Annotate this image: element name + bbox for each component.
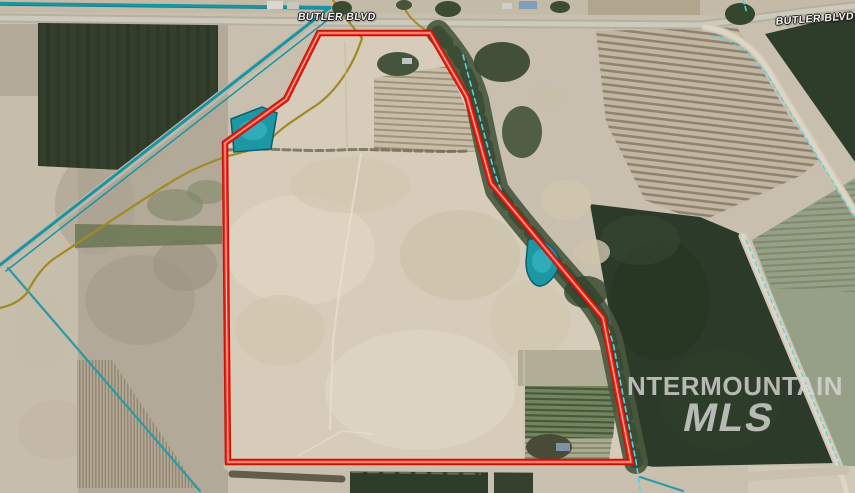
parcel-mottle bbox=[400, 210, 520, 300]
watermark-mls-text: MLS bbox=[680, 398, 779, 438]
trees-top bbox=[725, 3, 755, 25]
top-farm-field bbox=[588, 0, 700, 15]
mls-aerial-listing-photo: BUTLER BLVD BUTLER BLVD NTERMOUNTAIN MLS bbox=[0, 0, 855, 493]
hedgerow-south bbox=[232, 474, 342, 479]
trees-top bbox=[550, 1, 570, 13]
sand-gap bbox=[574, 239, 610, 265]
parcel-mottle bbox=[290, 157, 410, 213]
green-mottle bbox=[600, 215, 680, 265]
sand-gap bbox=[532, 87, 562, 107]
farmstead-se-roof bbox=[556, 443, 570, 451]
farmstead-ne-roof bbox=[402, 58, 412, 64]
trees-top bbox=[396, 0, 412, 10]
trees-top bbox=[435, 1, 461, 17]
parcel-mottle bbox=[235, 295, 325, 365]
riparian-blob bbox=[474, 42, 530, 82]
riparian-blob bbox=[502, 106, 542, 158]
parcel-subfield-se-gray bbox=[518, 350, 616, 386]
building-top bbox=[287, 2, 299, 9]
green-band-west bbox=[75, 224, 222, 248]
building-top-blue-roof bbox=[519, 1, 537, 9]
building-top bbox=[502, 3, 512, 9]
parcel-mottle bbox=[490, 280, 570, 360]
road-label-butler-blvd-west: BUTLER BLVD bbox=[297, 11, 376, 23]
building-top bbox=[267, 1, 283, 9]
farmstead-ne bbox=[377, 52, 419, 76]
sand-gap bbox=[540, 180, 592, 220]
scrub-mottle bbox=[153, 239, 217, 291]
green-scrub-patch bbox=[187, 180, 227, 204]
